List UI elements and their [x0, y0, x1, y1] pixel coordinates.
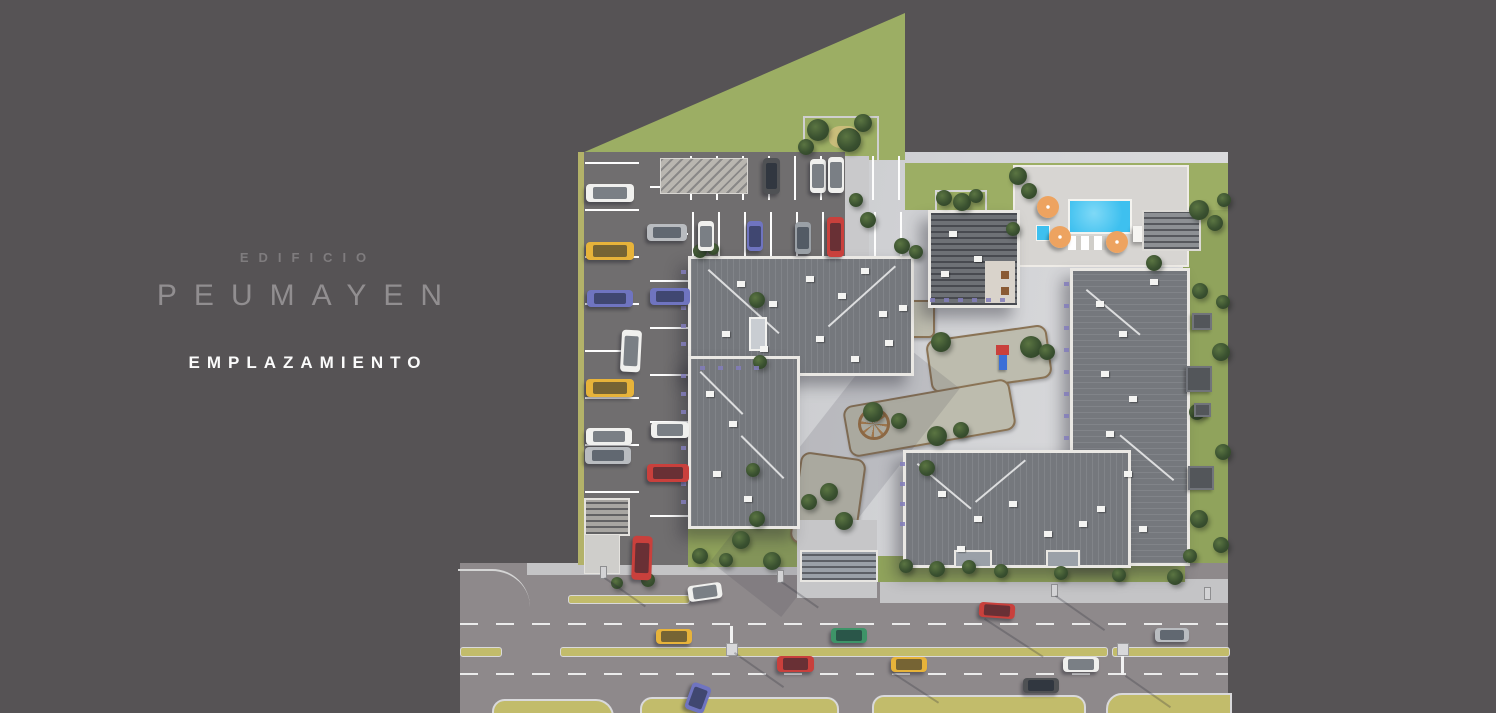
- tree: [1112, 568, 1126, 582]
- tree: [863, 402, 883, 422]
- lawn-pergola: [1192, 313, 1212, 330]
- car-green: [831, 628, 867, 643]
- balcony-planter: [736, 366, 741, 370]
- street-median: [1112, 647, 1230, 657]
- lawn-pergola: [1194, 403, 1211, 417]
- balcony-planter: [958, 298, 963, 302]
- roof-vent: [941, 271, 949, 277]
- tree: [927, 426, 947, 446]
- tree: [732, 531, 750, 549]
- balcony-planter: [1000, 298, 1005, 302]
- tree: [860, 212, 876, 228]
- roof-vent: [938, 491, 946, 497]
- tree: [749, 292, 765, 308]
- balcony-planter: [681, 270, 686, 274]
- car-blue: [650, 288, 690, 305]
- car-glass: [653, 467, 682, 480]
- roof-vent: [1044, 531, 1052, 537]
- roof-vent: [737, 281, 745, 287]
- roof-vent: [816, 336, 824, 342]
- street-light: [1204, 587, 1211, 600]
- tree: [835, 512, 853, 530]
- roof-vent: [744, 496, 752, 502]
- balcony-planter: [1064, 414, 1069, 418]
- balcony-planter: [930, 298, 935, 302]
- car-glass: [830, 162, 841, 187]
- car-glass: [593, 431, 625, 443]
- cast-shadow: [781, 581, 819, 608]
- roof-vent: [1079, 521, 1087, 527]
- tree: [936, 190, 952, 206]
- roof-vent: [899, 305, 907, 311]
- tree: [891, 413, 907, 429]
- car-white: [586, 184, 634, 202]
- car-glass: [592, 450, 624, 462]
- car-white: [1063, 657, 1099, 672]
- car-glass: [657, 424, 684, 435]
- balcony-planter: [900, 462, 905, 466]
- roof-vent: [974, 516, 982, 522]
- traffic-island: [872, 695, 1086, 713]
- roof-vent: [769, 301, 777, 307]
- balcony-planter: [681, 342, 686, 346]
- car-glass: [593, 187, 627, 200]
- car-glass: [1068, 659, 1093, 670]
- street-median: [460, 647, 502, 657]
- traffic-island: [1106, 693, 1232, 713]
- tree: [801, 494, 817, 510]
- roof-vent: [1119, 331, 1127, 337]
- tree: [969, 189, 983, 203]
- tree: [931, 332, 951, 352]
- tree: [1212, 343, 1230, 361]
- tree: [994, 564, 1008, 578]
- roof-vent: [885, 340, 893, 346]
- pool-umbrella: [1106, 231, 1128, 253]
- roof-vent: [1150, 279, 1158, 285]
- car-yellow: [586, 379, 634, 397]
- roof-vent: [879, 311, 887, 317]
- street-median: [560, 647, 730, 657]
- car-white: [698, 221, 714, 251]
- car-white: [828, 157, 844, 193]
- roof-vent: [838, 293, 846, 299]
- roof-vent: [1101, 371, 1109, 377]
- balcony-planter: [681, 446, 686, 450]
- roof-vent: [722, 331, 730, 337]
- balcony-planter: [681, 374, 686, 378]
- car-dark: [1023, 678, 1059, 693]
- balcony-planter: [1064, 392, 1069, 396]
- car-glass: [766, 163, 778, 188]
- car-white: [651, 422, 689, 438]
- balcony-planter: [944, 298, 949, 302]
- balcony-planter: [681, 410, 686, 414]
- tree: [1216, 295, 1230, 309]
- tree: [1183, 549, 1197, 563]
- roof-vent: [851, 356, 859, 362]
- site-plan-render: [0, 0, 1496, 713]
- tree: [1189, 200, 1209, 220]
- balcony-planter: [1064, 304, 1069, 308]
- tree: [1021, 183, 1037, 199]
- car-glass: [1028, 680, 1053, 691]
- tree: [962, 560, 976, 574]
- car-blue: [747, 221, 763, 251]
- cast-shadow: [1055, 595, 1105, 631]
- car-yellow: [891, 657, 927, 672]
- car-glass: [896, 659, 921, 670]
- car-blue: [587, 290, 633, 307]
- tree: [1217, 193, 1231, 207]
- balcony-planter: [900, 502, 905, 506]
- tree: [1215, 444, 1231, 460]
- tree: [1039, 344, 1055, 360]
- car-glass: [692, 585, 717, 599]
- tree: [909, 245, 923, 259]
- tree: [929, 561, 945, 577]
- presentation-slide: EDIFICIO PEUMAYEN EMPLAZAMIENTO: [0, 0, 1496, 713]
- car-white: [620, 330, 642, 373]
- lawn-pergola: [1186, 366, 1212, 392]
- tree: [746, 463, 760, 477]
- roof-vent: [1106, 431, 1114, 437]
- tree: [837, 128, 861, 152]
- balcony-planter: [900, 522, 905, 526]
- car-red: [827, 217, 844, 257]
- roof-vent: [1124, 471, 1132, 477]
- tree: [849, 193, 863, 207]
- roof-vent: [949, 231, 957, 237]
- car-glass: [797, 227, 808, 249]
- roof-vent: [1139, 526, 1147, 532]
- car-glass: [593, 245, 627, 258]
- tree: [953, 422, 969, 438]
- tree: [1167, 569, 1183, 585]
- object-layer: [0, 0, 1496, 713]
- car-silver: [647, 224, 687, 241]
- roof-vent: [1097, 506, 1105, 512]
- tree: [1006, 222, 1020, 236]
- balcony-planter: [681, 482, 686, 486]
- tree: [1009, 167, 1027, 185]
- roof-vent: [1129, 396, 1137, 402]
- tree: [1213, 537, 1229, 553]
- tree: [692, 548, 708, 564]
- roof-vent: [861, 268, 869, 274]
- tree: [749, 511, 765, 527]
- balcony-planter: [1064, 326, 1069, 330]
- car-white: [810, 159, 826, 193]
- car-glass: [661, 631, 686, 642]
- car-gray: [795, 222, 811, 254]
- tree: [763, 552, 781, 570]
- tree: [1190, 510, 1208, 528]
- tree: [894, 238, 910, 254]
- balcony-planter: [718, 366, 723, 370]
- car-glass: [700, 226, 711, 247]
- car-red: [979, 602, 1016, 619]
- car-silver: [585, 447, 631, 464]
- tree: [854, 114, 872, 132]
- car-glass: [749, 226, 760, 247]
- car-yellow: [586, 242, 634, 260]
- car-glass: [830, 223, 842, 251]
- car-glass: [653, 227, 681, 239]
- roof-vent: [806, 276, 814, 282]
- balcony-planter: [1064, 282, 1069, 286]
- car-glass: [623, 336, 639, 366]
- tree: [719, 553, 733, 567]
- balcony-planter: [754, 366, 759, 370]
- car-glass: [984, 604, 1010, 616]
- balcony-planter: [900, 482, 905, 486]
- car-red: [647, 464, 689, 482]
- roof-vent: [974, 256, 982, 262]
- car-glass: [593, 382, 627, 395]
- tree: [1192, 283, 1208, 299]
- car-white: [586, 428, 632, 445]
- car-yellow: [656, 629, 692, 644]
- balcony-planter: [986, 298, 991, 302]
- roof-vent: [1009, 501, 1017, 507]
- car-glass: [594, 293, 626, 305]
- tree: [1054, 566, 1068, 580]
- car-white: [687, 582, 723, 603]
- roof-vent: [760, 346, 768, 352]
- roof-vent: [713, 471, 721, 477]
- car-glass: [634, 542, 649, 573]
- car-dark: [763, 158, 780, 194]
- traffic-island: [492, 699, 614, 713]
- tree: [798, 139, 814, 155]
- car-silver: [1155, 628, 1189, 642]
- tree: [1207, 215, 1223, 231]
- roof-vent: [706, 391, 714, 397]
- roof-vent: [957, 546, 965, 552]
- car-glass: [688, 686, 708, 709]
- balcony-planter: [1064, 348, 1069, 352]
- balcony-planter: [681, 324, 686, 328]
- utility-box: [1117, 643, 1129, 656]
- tree: [820, 483, 838, 501]
- lawn-pergola: [1188, 466, 1214, 490]
- car-glass: [1160, 630, 1184, 640]
- traffic-island: [640, 697, 839, 713]
- roof-vent: [729, 421, 737, 427]
- tree: [899, 559, 913, 573]
- tree: [1146, 255, 1162, 271]
- car-glass: [783, 658, 809, 669]
- car-glass: [836, 630, 861, 641]
- balcony-planter: [972, 298, 977, 302]
- balcony-planter: [1064, 436, 1069, 440]
- balcony-planter: [681, 306, 686, 310]
- pool-umbrella: [1037, 196, 1059, 218]
- car-red: [631, 536, 653, 581]
- balcony-planter: [700, 366, 705, 370]
- pool-umbrella: [1049, 226, 1071, 248]
- balcony-planter: [681, 392, 686, 396]
- car-red: [777, 656, 814, 672]
- balcony-planter: [1064, 370, 1069, 374]
- tree: [919, 460, 935, 476]
- balcony-planter: [681, 500, 686, 504]
- car-glass: [812, 164, 823, 188]
- car-glass: [656, 291, 684, 303]
- roof-vent: [1096, 301, 1104, 307]
- tree: [807, 119, 829, 141]
